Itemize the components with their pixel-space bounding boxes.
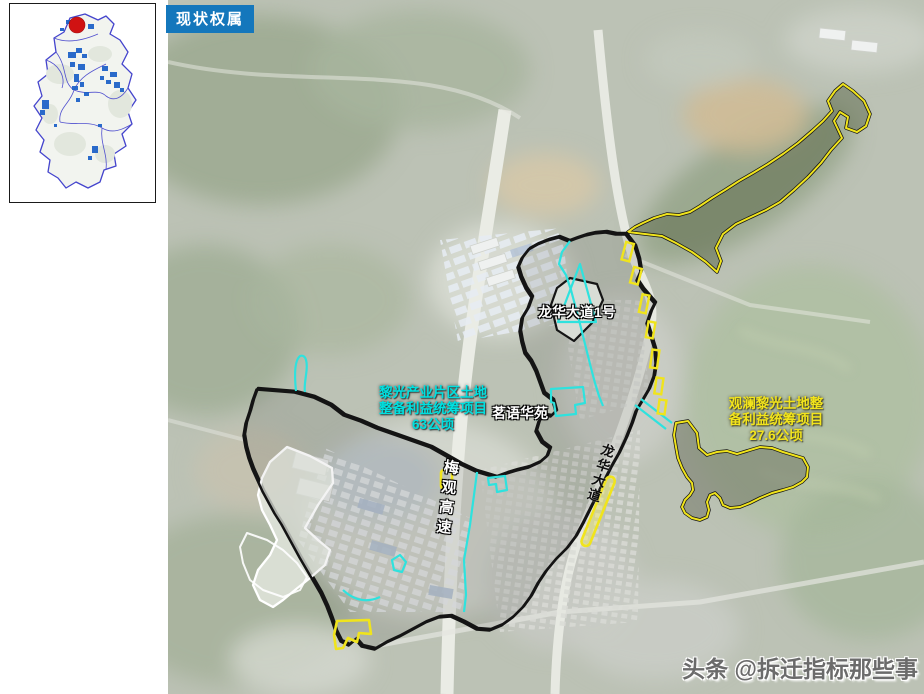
inset-location-marker: [69, 17, 85, 33]
district-location-inset: [9, 3, 156, 203]
inset-map-canvas: [10, 4, 154, 201]
satellite-imagery: [110, 0, 924, 694]
screenshot-stage: 现状权属 黎光产业片区土地 整备利益统筹项目 63公顷 观澜黎光土地整 备利益统…: [0, 0, 924, 694]
watermark-text: 头条 @拆迁指标那些事: [682, 650, 918, 684]
title-badge: 现状权属: [166, 5, 254, 33]
